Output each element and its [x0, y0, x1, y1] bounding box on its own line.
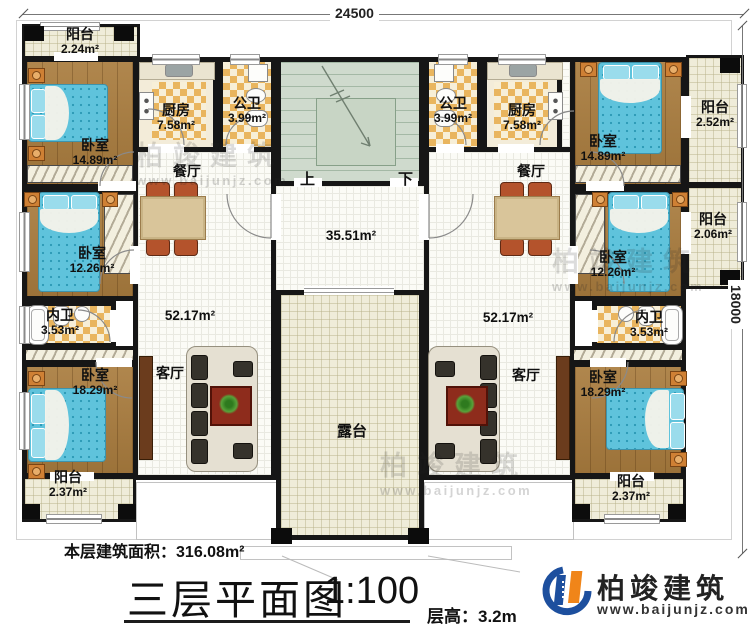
- nightstand: [28, 371, 45, 386]
- dining-table: [140, 196, 206, 240]
- entry-step: [240, 546, 512, 560]
- bed-pillow: [603, 65, 630, 80]
- column: [271, 528, 292, 544]
- window: [19, 84, 30, 140]
- door-opening: [586, 181, 624, 191]
- label-innerbath-r: 内卫3.53m²: [630, 310, 668, 339]
- label-area-l: 52.17m²: [165, 308, 215, 323]
- window: [438, 54, 468, 65]
- label-bedroom-l1: 卧室14.89m²: [73, 138, 118, 167]
- door-opening: [226, 144, 254, 153]
- dining-table: [494, 196, 560, 240]
- label-dining-l: 餐厅: [173, 164, 201, 180]
- door-opening: [436, 144, 464, 153]
- nightstand: [592, 192, 608, 207]
- nightstand: [24, 192, 40, 207]
- nightstand: [28, 464, 45, 479]
- door-opening: [568, 246, 578, 284]
- column: [408, 528, 429, 544]
- sliding-door: [304, 286, 394, 295]
- label-dining-r: 餐厅: [517, 164, 545, 180]
- porch-left: [136, 482, 278, 540]
- label-hall-area: 35.51m²: [326, 228, 376, 243]
- dining-chair: [146, 238, 170, 256]
- label-pubbath-l: 公卫3.99m²: [228, 96, 266, 125]
- floor-area-note: 本层建筑面积：316.08m²: [64, 538, 245, 562]
- sofa-cushion: [480, 439, 497, 464]
- label-bedroom-r3: 卧室18.29m²: [581, 370, 626, 399]
- bed-sheet: [645, 390, 669, 448]
- stove-icon: [548, 92, 563, 120]
- door-opening: [588, 310, 598, 342]
- dimension-top-label: 24500: [330, 5, 379, 21]
- window: [152, 54, 200, 65]
- plan-scale: 1:100: [324, 570, 419, 613]
- column: [572, 504, 590, 519]
- sofa-cushion: [191, 355, 208, 380]
- sofa-cushion: [480, 355, 497, 380]
- window: [498, 54, 546, 65]
- label-innerbath-l: 内卫3.53m²: [41, 308, 79, 337]
- sofa-cushion: [191, 439, 208, 464]
- label-balcony-r1: 阳台2.52m²: [696, 100, 734, 129]
- bed-pillow: [31, 394, 46, 424]
- column: [118, 504, 136, 519]
- door-opening: [96, 358, 132, 367]
- label-balcony-r2: 阳台2.06m²: [694, 212, 732, 241]
- bed: [28, 84, 108, 142]
- nightstand: [672, 192, 688, 207]
- dining-chair: [528, 238, 552, 256]
- nightstand: [28, 146, 45, 161]
- brand-logo-icon: [538, 565, 592, 622]
- plant: [455, 394, 475, 414]
- window: [230, 54, 260, 65]
- door-opening: [498, 144, 534, 153]
- tv-cabinet: [556, 356, 570, 460]
- plan-title: 三层平面图: [127, 566, 347, 626]
- label-balcony-br: 阳台2.37m²: [612, 474, 650, 503]
- bed-pillow: [670, 393, 685, 420]
- label-bedroom-l3: 卧室18.29m²: [73, 368, 118, 397]
- dimension-line-top: [22, 14, 744, 15]
- door-opening: [271, 194, 281, 240]
- nightstand: [102, 192, 118, 207]
- column: [22, 504, 40, 519]
- bed-pillow: [641, 195, 667, 210]
- brand-website: www.baijunjz.com: [597, 601, 750, 617]
- bed-sheet: [45, 86, 69, 140]
- label-bedroom-r1: 卧室14.89m²: [581, 134, 626, 163]
- dining-chair: [174, 238, 198, 256]
- bed-sheet: [45, 390, 69, 460]
- balcony-door-opening: [681, 212, 691, 254]
- label-kitchen-l: 厨房7.58m²: [157, 103, 195, 132]
- balcony-door-opening: [681, 96, 691, 138]
- bed-pillow: [632, 65, 659, 80]
- nightstand: [670, 371, 687, 386]
- door-opening: [130, 246, 140, 284]
- label-balcony-tl: 阳台2.24m²: [61, 27, 99, 56]
- bed-pillow: [613, 195, 639, 210]
- stove-icon: [139, 92, 154, 120]
- door-opening: [110, 310, 120, 342]
- column: [24, 26, 44, 41]
- floor-height-note: 层高：3.2m: [427, 602, 517, 627]
- window: [604, 514, 660, 524]
- column: [720, 58, 740, 73]
- sofa-cushion: [435, 361, 455, 377]
- room-terrace: [276, 290, 424, 540]
- door-opening: [98, 181, 136, 191]
- bed-pillow: [31, 89, 46, 113]
- floorplan-page: 24500 18000: [0, 0, 750, 635]
- dimension-right-label: 18000: [728, 280, 744, 329]
- column: [668, 504, 686, 519]
- stair-landing: [316, 98, 396, 166]
- bed-pillow: [31, 115, 46, 139]
- washer-icon: [248, 64, 268, 82]
- nightstand: [670, 452, 687, 467]
- label-area-r: 52.17m²: [483, 310, 533, 325]
- bed-pillow: [43, 195, 69, 210]
- label-kitchen-r: 厨房7.58m²: [503, 103, 541, 132]
- window: [19, 306, 30, 344]
- bed-sheet: [610, 209, 668, 233]
- sofa-cushion: [435, 443, 455, 459]
- column: [114, 26, 134, 41]
- nightstand: [28, 68, 45, 83]
- sofa-cushion: [191, 383, 208, 408]
- sofa-cushion: [233, 361, 253, 377]
- label-bedroom-l2: 卧室12.26m²: [70, 246, 115, 275]
- label-living-r: 客厅: [512, 368, 540, 384]
- dining-chair: [500, 238, 524, 256]
- nightstand: [580, 62, 597, 77]
- bed-sheet: [40, 209, 98, 233]
- door-opening: [419, 194, 429, 240]
- bed-pillow: [670, 422, 685, 449]
- title-underline: [124, 620, 410, 623]
- bed-pillow: [31, 428, 46, 458]
- tv-cabinet: [139, 356, 153, 460]
- bed: [38, 192, 100, 292]
- porch-right: [424, 482, 574, 540]
- bed: [28, 388, 106, 462]
- label-stairs-down: 下: [398, 168, 413, 189]
- kitchen-sink: [509, 64, 537, 77]
- bed-pillow: [71, 195, 97, 210]
- washer-icon: [434, 64, 454, 82]
- window: [19, 212, 30, 272]
- label-pubbath-r: 公卫3.99m²: [434, 96, 472, 125]
- plant: [219, 394, 239, 414]
- door-opening: [148, 144, 184, 153]
- label-terrace: 露台: [337, 424, 367, 441]
- window: [46, 514, 102, 524]
- kitchen-sink: [165, 64, 193, 77]
- sofa-cushion: [233, 443, 253, 459]
- nightstand: [665, 62, 682, 77]
- door-opening: [590, 358, 626, 367]
- label-living-l: 客厅: [156, 366, 184, 382]
- bed-sheet: [600, 79, 660, 103]
- window: [19, 392, 30, 450]
- label-bedroom-r2: 卧室12.26m²: [591, 250, 636, 279]
- sofa-cushion: [191, 411, 208, 436]
- label-balcony-bl: 阳台2.37m²: [49, 470, 87, 499]
- label-stairs-up: 上: [300, 168, 315, 189]
